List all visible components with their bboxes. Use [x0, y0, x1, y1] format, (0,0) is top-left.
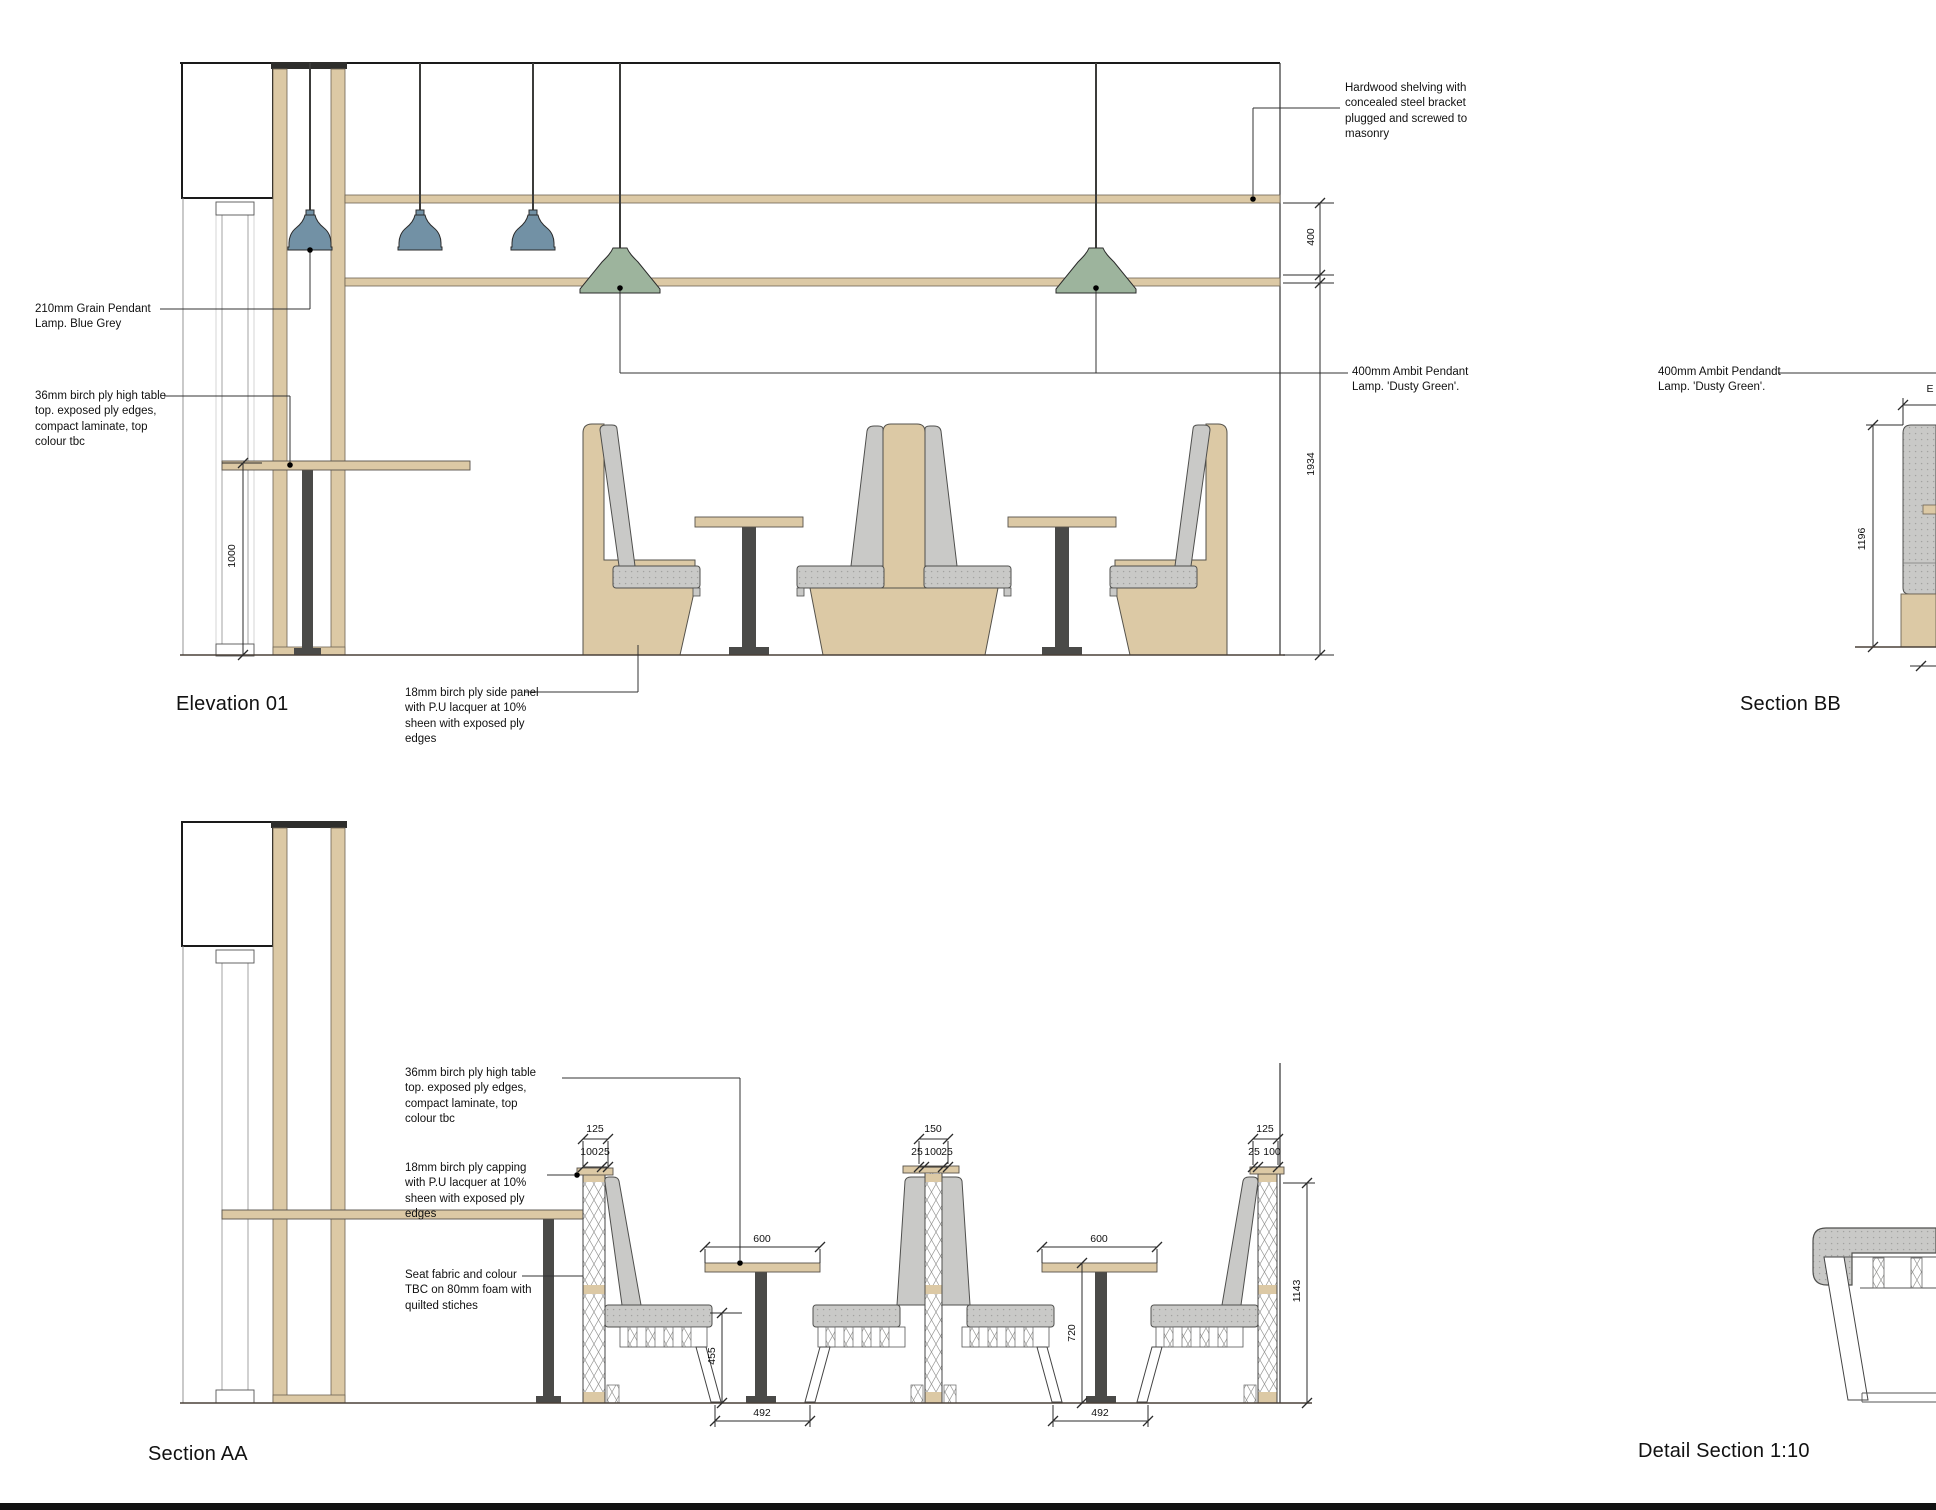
- note-seat-fabric: Seat fabric and colour TBC on 80mm foam …: [405, 1268, 575, 1314]
- dim-booth3-layer-100: 100: [1258, 1146, 1286, 1158]
- hardwood-shelves: [345, 195, 1280, 286]
- dim-lower-height: 1934: [1305, 442, 1317, 486]
- dim-booth2-top: 150: [913, 1123, 953, 1135]
- drawing-canvas: [0, 0, 1936, 1510]
- section-aa-drawing: [180, 821, 1315, 1427]
- window-section: [183, 946, 254, 1403]
- booth-single-left: [583, 424, 700, 655]
- booth1-section: [577, 1168, 721, 1403]
- note-ambit-pendant-section-bb: 400mm Ambit Pendandt Lamp. 'Dusty Green'…: [1658, 365, 1828, 396]
- ambit-pendant-lamps: [580, 63, 1136, 293]
- dim-shelf-gap: 400: [1305, 215, 1317, 259]
- dim-booth1-top: 125: [575, 1123, 615, 1135]
- title-section-bb: Section BB: [1740, 693, 1841, 716]
- sheet-edge-bar: [0, 1503, 1936, 1510]
- dim-booth2-layer-25b: 25: [940, 1146, 954, 1158]
- dim-booth3-top: 125: [1245, 1123, 1285, 1135]
- pedestal-table-2-section: [1042, 1263, 1157, 1403]
- pedestal-table-2: [1008, 517, 1116, 655]
- dim-booth1-layer-25: 25: [597, 1146, 611, 1158]
- booth-double-centre: [797, 424, 1011, 655]
- note-hardwood-shelving: Hardwood shelving with concealed steel b…: [1345, 81, 1515, 142]
- dim-bb-height: 1196: [1856, 517, 1868, 561]
- pedestal-table-1: [695, 517, 803, 655]
- dim-table2-width: 600: [1079, 1233, 1119, 1245]
- dim-table1-width: 600: [742, 1233, 782, 1245]
- booth-single-right: [1110, 424, 1227, 655]
- booth2-section: [805, 1166, 1062, 1403]
- elevation-01-drawing: [160, 62, 1348, 692]
- dim-bb-width-label: E: [1920, 383, 1936, 395]
- detail-section-drawing: [1813, 1228, 1936, 1402]
- dim-seat-height: 455: [706, 1334, 718, 1378]
- dim-table1-base: 492: [742, 1407, 782, 1419]
- dim-booth-height: 1143: [1291, 1269, 1303, 1313]
- title-section-aa: Section AA: [148, 1443, 248, 1466]
- grain-pendant-lamps: [288, 63, 555, 250]
- dim-table-height-elevation: 1000: [226, 534, 238, 578]
- booth3-section: [1137, 1167, 1284, 1403]
- high-table-elevation: [222, 461, 470, 655]
- dim-table-height-section: 720: [1066, 1311, 1078, 1355]
- note-grain-pendant: 210mm Grain Pendant Lamp. Blue Grey: [35, 302, 205, 333]
- note-high-table-elevation: 36mm birch ply high table top. exposed p…: [35, 389, 205, 450]
- note-capping: 18mm birch ply capping with P.U lacquer …: [405, 1161, 575, 1222]
- note-side-panel: 18mm birch ply side panel with P.U lacqu…: [405, 686, 575, 747]
- timber-column-section: [273, 828, 345, 1403]
- title-detail-section: Detail Section 1:10: [1638, 1440, 1810, 1463]
- title-elevation-01: Elevation 01: [176, 693, 288, 716]
- note-ambit-pendant-elevation: 400mm Ambit Pendant Lamp. 'Dusty Green'.: [1352, 365, 1522, 396]
- drawing-sheet: Elevation 01 Section BB Section AA Detai…: [0, 0, 1936, 1510]
- note-high-table-section: 36mm birch ply high table top. exposed p…: [405, 1066, 575, 1127]
- dim-table2-base: 492: [1080, 1407, 1120, 1419]
- booth-back-section: [1901, 425, 1936, 647]
